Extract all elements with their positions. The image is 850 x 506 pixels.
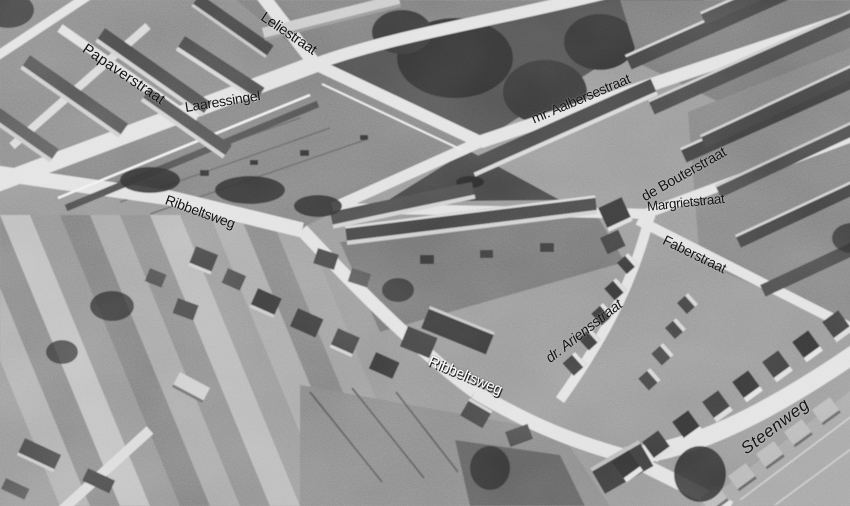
aerial-photo: Papaverstraat Leliestraat Laaressingel m… <box>0 0 850 506</box>
